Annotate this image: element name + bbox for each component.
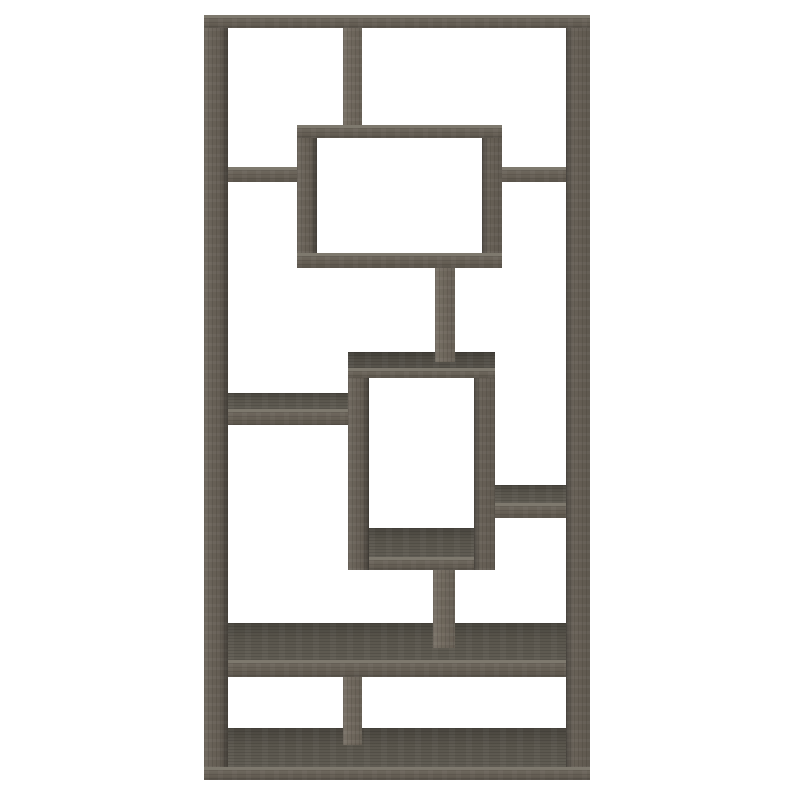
upper-right-shelf — [502, 167, 566, 182]
middle-box-top-face — [348, 368, 495, 378]
outer-bottom-face — [204, 767, 590, 780]
upper-box-bottom-board — [297, 253, 502, 268]
middle-box-bottom-face — [369, 557, 474, 570]
upper-box-right-post — [482, 125, 502, 268]
outer-top-board — [204, 15, 590, 28]
upper-left-shelf — [228, 167, 297, 182]
wide-shelf-face — [228, 660, 566, 677]
bookcase-product-image — [0, 0, 800, 800]
outer-right-post — [566, 28, 590, 767]
outer-left-post — [204, 28, 228, 767]
middle-box-interior-floor — [369, 528, 474, 557]
bottom-divider — [343, 677, 362, 745]
wide-shelf-top — [228, 623, 566, 660]
center-post-upper — [435, 268, 455, 362]
top-center-divider — [343, 28, 362, 125]
middle-box-top-surface — [348, 352, 495, 368]
upper-box-left-post — [297, 125, 317, 268]
middle-box-left-post — [348, 352, 369, 570]
bottom-shelf-top — [228, 728, 566, 767]
center-post-lower — [433, 570, 455, 648]
middle-left-shelf-face — [228, 409, 348, 425]
middle-box-right-post — [474, 352, 495, 570]
middle-left-shelf-top — [228, 393, 348, 409]
middle-right-shelf-top — [495, 485, 566, 503]
upper-box-top-board — [297, 125, 502, 138]
middle-right-shelf-face — [495, 503, 566, 518]
